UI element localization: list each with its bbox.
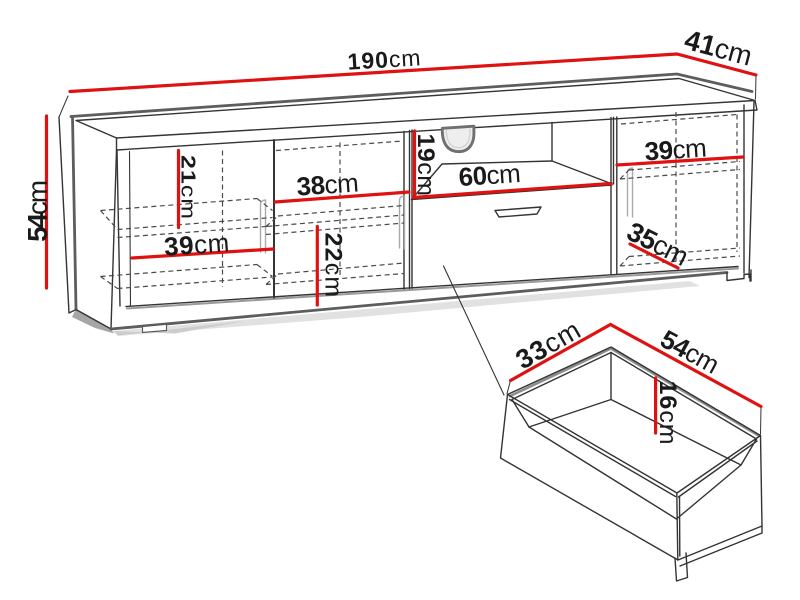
svg-text:60cm: 60cm	[458, 158, 522, 192]
svg-text:54cm: 54cm	[22, 181, 53, 242]
svg-text:16cm: 16cm	[654, 381, 680, 446]
svg-text:39cm: 39cm	[644, 133, 707, 167]
svg-text:190cm: 190cm	[347, 44, 422, 74]
svg-text:22cm: 22cm	[320, 233, 346, 299]
svg-text:19cm: 19cm	[412, 134, 438, 197]
svg-text:39cm: 39cm	[163, 227, 231, 262]
svg-text:38cm: 38cm	[296, 167, 360, 201]
svg-text:21cm: 21cm	[177, 155, 199, 220]
